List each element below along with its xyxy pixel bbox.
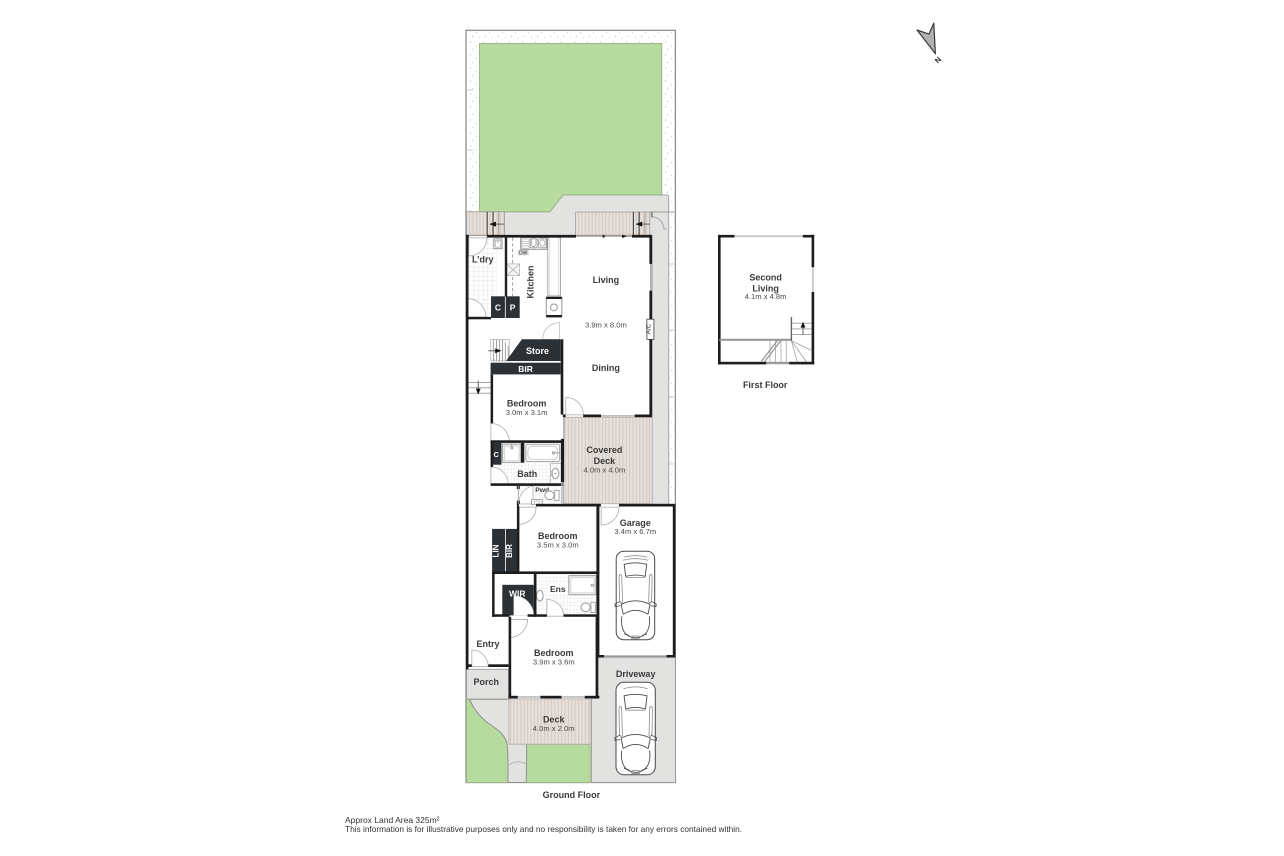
svg-text:Ens: Ens bbox=[550, 584, 566, 594]
svg-text:BIR: BIR bbox=[518, 364, 533, 374]
svg-text:Bath: Bath bbox=[517, 469, 537, 479]
svg-text:A/C: A/C bbox=[646, 323, 653, 334]
svg-text:3.0m x 3.1m: 3.0m x 3.1m bbox=[506, 408, 548, 417]
svg-text:3.9m x 8.0m: 3.9m x 8.0m bbox=[585, 320, 627, 329]
svg-text:4.1m x 4.8m: 4.1m x 4.8m bbox=[745, 292, 787, 301]
svg-text:Second: Second bbox=[749, 272, 782, 282]
svg-text:First Floor: First Floor bbox=[743, 380, 788, 390]
svg-text:Dining: Dining bbox=[592, 363, 620, 373]
svg-text:Kitchen: Kitchen bbox=[526, 265, 536, 298]
svg-text:Bedroom: Bedroom bbox=[507, 398, 547, 408]
svg-text:Ground Floor: Ground Floor bbox=[543, 790, 601, 800]
svg-text:4.0m x 4.0m: 4.0m x 4.0m bbox=[584, 466, 626, 475]
svg-text:3.9m x 3.6m: 3.9m x 3.6m bbox=[533, 657, 575, 666]
svg-text:LIN: LIN bbox=[492, 544, 501, 557]
svg-text:Deck: Deck bbox=[543, 714, 566, 724]
svg-text:Store: Store bbox=[526, 346, 549, 356]
svg-text:Bedroom: Bedroom bbox=[538, 531, 578, 541]
svg-text:C: C bbox=[493, 450, 499, 459]
svg-text:N: N bbox=[933, 55, 943, 65]
svg-text:Porch: Porch bbox=[474, 677, 500, 687]
svg-text:DW: DW bbox=[519, 250, 528, 256]
svg-text:BIR: BIR bbox=[505, 544, 514, 558]
svg-text:This information is for illust: This information is for illustrative pur… bbox=[345, 824, 742, 834]
svg-text:Covered: Covered bbox=[586, 445, 622, 455]
svg-text:P: P bbox=[510, 303, 516, 313]
svg-text:L’dry: L’dry bbox=[472, 255, 494, 265]
svg-text:Living: Living bbox=[593, 275, 620, 285]
svg-text:3.4m x 6.7m: 3.4m x 6.7m bbox=[614, 527, 656, 536]
svg-text:Deck: Deck bbox=[594, 456, 617, 466]
svg-text:Driveway: Driveway bbox=[616, 669, 656, 679]
svg-text:3.5m x 3.0m: 3.5m x 3.0m bbox=[537, 541, 579, 550]
svg-text:C: C bbox=[495, 303, 501, 313]
svg-text:Entry: Entry bbox=[476, 639, 499, 649]
svg-text:4.0m x 2.0m: 4.0m x 2.0m bbox=[533, 724, 575, 733]
